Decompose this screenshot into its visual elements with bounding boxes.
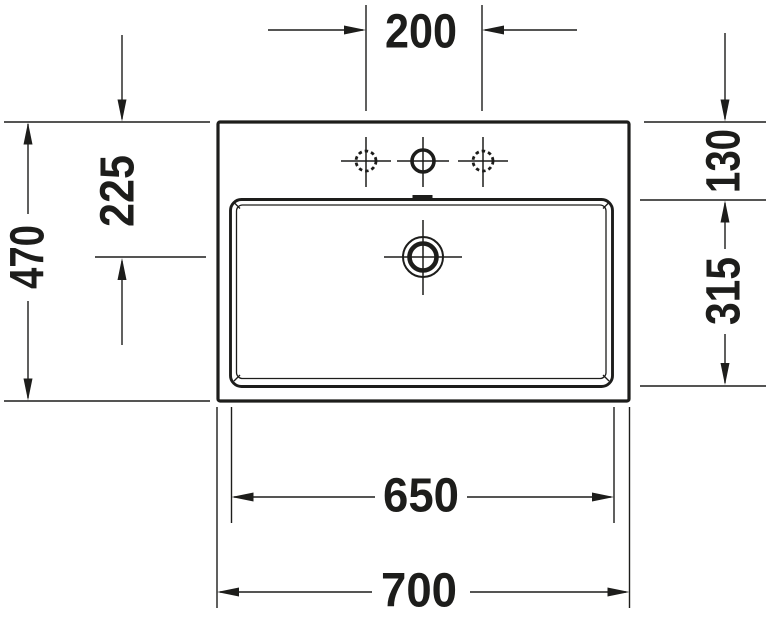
overflow-slot (413, 195, 433, 200)
dim-label-overall-depth: 470 (1, 225, 54, 289)
drawing-background (0, 0, 767, 622)
dim-label-basin-width: 650 (383, 469, 459, 522)
washbasin-technical-drawing: 200 470 225 130 315 650 700 (0, 0, 767, 622)
dim-label-tap-spacing: 200 (385, 5, 457, 58)
dim-label-rim-offset: 130 (697, 129, 750, 193)
dim-label-drain-center: 225 (91, 155, 144, 227)
drawing-canvas: 200 470 225 130 315 650 700 (0, 0, 767, 622)
dim-label-basin-depth: 315 (697, 257, 750, 325)
dim-label-overall-width: 700 (381, 564, 457, 617)
